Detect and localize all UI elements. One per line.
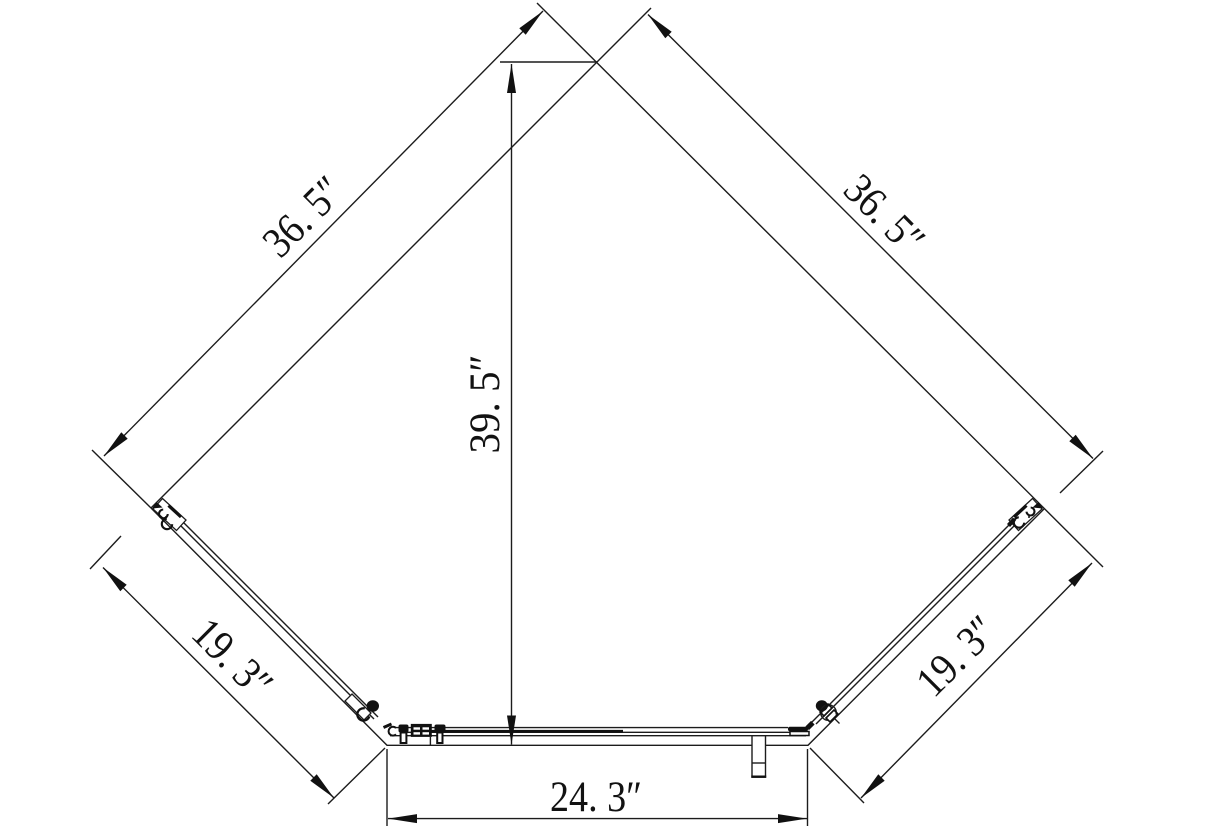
- svg-text:24. 3″: 24. 3″: [550, 773, 642, 821]
- svg-text:39. 5″: 39. 5″: [461, 355, 509, 454]
